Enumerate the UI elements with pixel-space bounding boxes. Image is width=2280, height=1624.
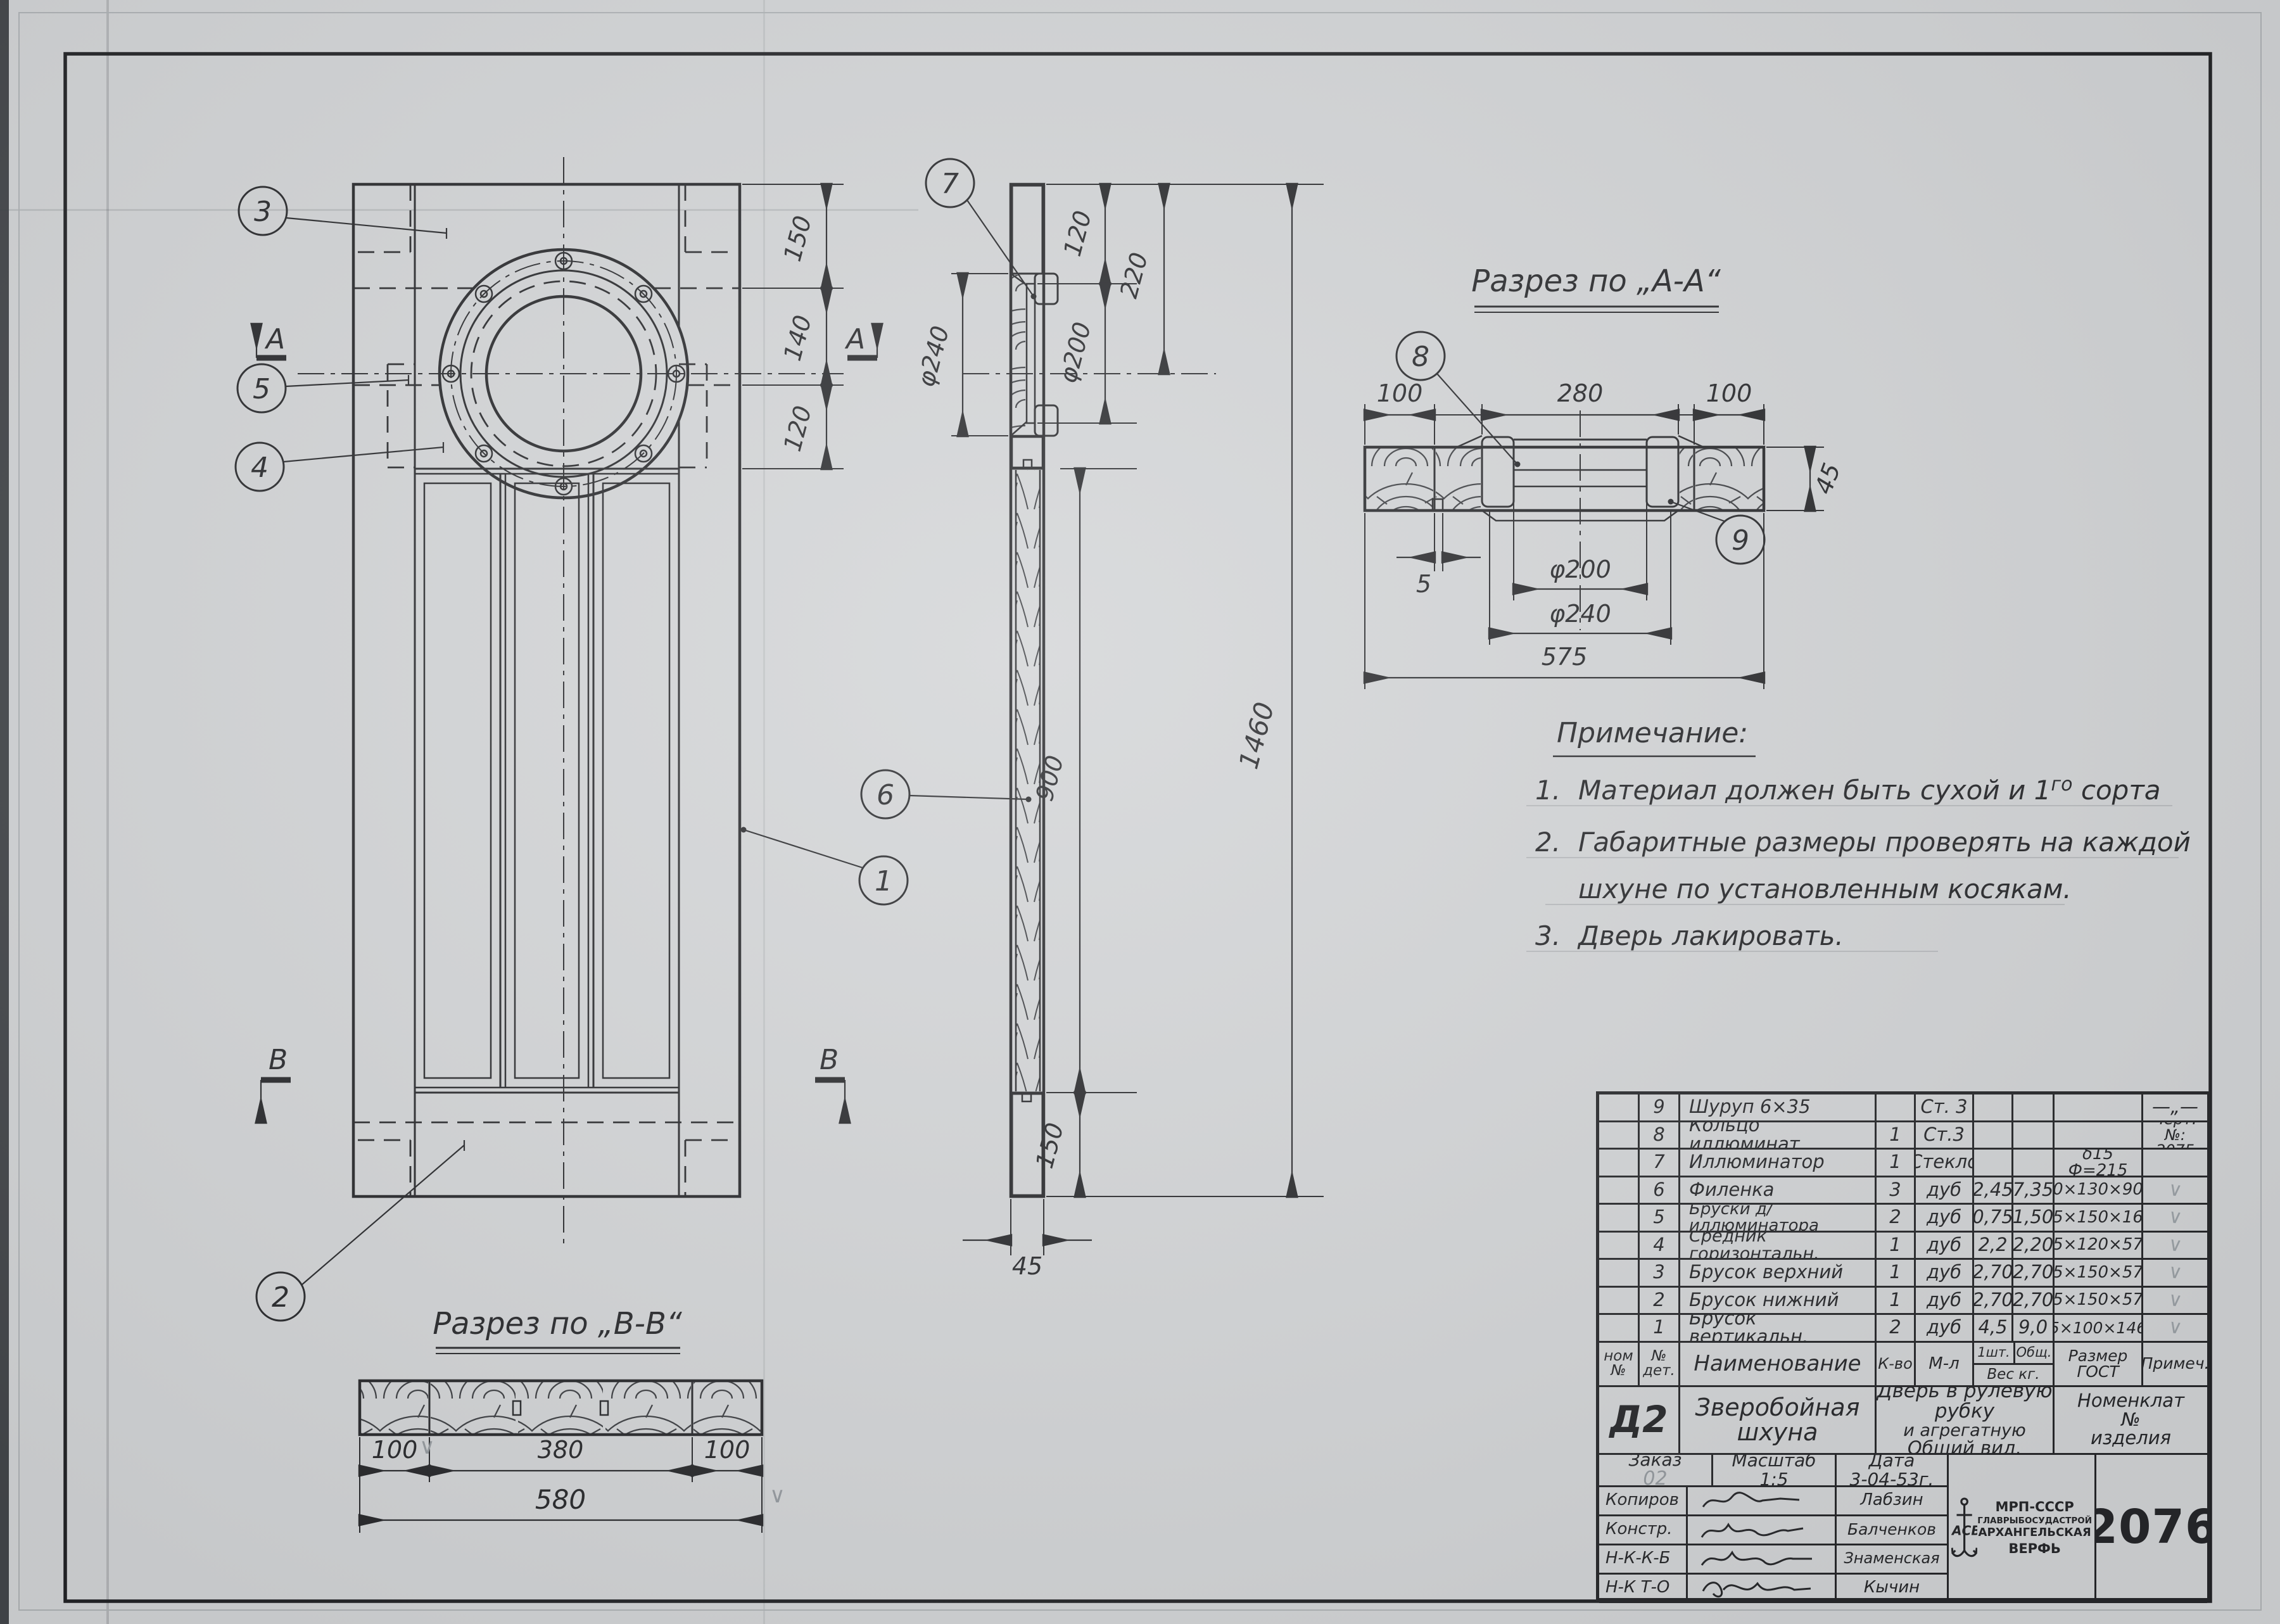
callout-6: 6	[861, 770, 1032, 818]
sig-name: Лабзин	[1837, 1487, 1949, 1516]
table-row: 7 Иллюминатор 1 Стекло δ15 Ф=215	[1599, 1150, 2207, 1177]
sig-name: Балченков	[1837, 1516, 1949, 1545]
dim-580: 580	[535, 1484, 586, 1515]
part-name: Филенка	[1680, 1177, 1877, 1203]
part-name: Средник горизонтальн.	[1680, 1233, 1877, 1259]
table-row: 5 Бруски д/иллюминатора 2 дуб 0,75 1,50 …	[1599, 1205, 2207, 1233]
section-aa-title: Разрез по „А-А“	[1471, 263, 1721, 299]
marker-b-label: В	[820, 1044, 839, 1076]
svg-text:4: 4	[251, 452, 269, 484]
svg-text:3: 3	[254, 196, 272, 228]
part-weight-each	[1974, 1094, 2013, 1120]
dim-phi200: φ200	[1054, 319, 1097, 386]
part-note: —„—	[2143, 1094, 2207, 1120]
section-marker-a-right: А	[844, 323, 877, 358]
logo-letters: АСВ	[1951, 1523, 1977, 1538]
part-name: Брусок нижний	[1680, 1288, 1877, 1314]
svg-text:1: 1	[875, 865, 892, 898]
part-size: 45×150×160	[2055, 1205, 2143, 1231]
sig-name: Знаменская	[1837, 1545, 1949, 1575]
organization-name: МРП-СССР ГЛАВРЫБОСУДАСТРОЙ АРХАНГЕЛЬСКАЯ…	[1977, 1499, 2092, 1557]
callout-5: 5	[237, 364, 408, 412]
approval-block: Заказ 02 Масштаб1:5 Дата3-04-53г.	[1599, 1455, 2207, 1604]
note-2-number: 2.	[1535, 827, 1561, 858]
header-qty: К-во	[1877, 1343, 1916, 1385]
svg-text:2: 2	[272, 1281, 289, 1314]
svg-text:5: 5	[253, 373, 270, 405]
dim-100-right: 100	[1706, 379, 1752, 407]
dim-100-left: 100	[1377, 379, 1423, 407]
part-material: Ст.3	[1916, 1122, 1974, 1148]
part-size: 45×150×575	[2055, 1260, 2143, 1286]
dim-phi240: φ240	[1549, 600, 1611, 628]
part-size: 45×150×575	[2055, 1288, 2143, 1314]
part-weight-total: 9,0	[2013, 1315, 2055, 1341]
dim-phi240: φ240	[912, 323, 955, 390]
aa-dimensions: 100 280 100 5 φ200 φ240 575	[1365, 379, 1846, 689]
part-qty: 2	[1877, 1315, 1916, 1341]
part-weight-each	[1974, 1122, 2013, 1148]
part-num: 9	[1640, 1094, 1680, 1120]
dim-380: 380	[538, 1436, 584, 1464]
dim-100-left: 100	[372, 1436, 418, 1464]
dim-45: 45	[1012, 1252, 1042, 1280]
nomenclature: Номенклат№изделия	[2055, 1387, 2207, 1453]
callouts: 3 5 4 2 1 6 7 8 9	[236, 159, 1764, 1321]
dim-120: 120	[1058, 208, 1097, 259]
part-qty: 1	[1877, 1288, 1916, 1314]
callout-4: 4	[236, 442, 443, 491]
part-num: 2	[1640, 1288, 1680, 1314]
drawing-title-row: Д2 Зверобойнаяшхуна Дверь в рулевую рубк…	[1599, 1387, 2207, 1455]
part-qty: 1	[1877, 1150, 1916, 1176]
part-material: дуб	[1916, 1315, 1974, 1341]
part-weight-each: 0,75	[1974, 1205, 2013, 1231]
part-size: δ15 Ф=215	[2055, 1150, 2143, 1176]
marker-a-label: А	[264, 323, 285, 355]
section-marker-b-left: В	[261, 1044, 291, 1122]
date-cell: Дата3-04-53г.	[1837, 1455, 1949, 1487]
part-weight-each: 2,45	[1974, 1177, 2013, 1203]
part-num: 6	[1640, 1177, 1680, 1203]
dim-150: 150	[778, 213, 817, 264]
notes-title: Примечание:	[1557, 717, 1748, 749]
part-qty	[1877, 1094, 1916, 1120]
note-2-line-1: Габаритные размеры проверять на каждой	[1578, 827, 2191, 858]
dim-100-right: 100	[704, 1436, 750, 1464]
section-aa: Разрез по „А-А“	[1365, 263, 1846, 689]
part-material: дуб	[1916, 1233, 1974, 1259]
table-row: 8 Кольцо иллюминат. 1 Ст.3 Черт.№:2075	[1599, 1122, 2207, 1150]
part-num: 1	[1640, 1315, 1680, 1341]
dim-575: 575	[1542, 643, 1588, 671]
organization-stamp: АСВ МРП-СССР ГЛАВРЫБОСУДАСТРОЙ АРХАНГЕЛЬ…	[1949, 1455, 2096, 1604]
svg-text:9: 9	[1732, 524, 1749, 557]
dim-150: 150	[1030, 1120, 1069, 1171]
note-3: Дверь лакировать.	[1577, 920, 1844, 951]
section-bb: Разрез по „В-В“ 100 380	[360, 1306, 785, 1533]
title-block: 9 Шуруп 6×35 Ст. 3 —„— 8 Кольцо иллюмина…	[1596, 1091, 2210, 1601]
part-qty: 3	[1877, 1177, 1916, 1203]
part-name: Бруски д/иллюминатора	[1680, 1205, 1877, 1231]
sheet-number: 2076	[2096, 1455, 2207, 1604]
bb-dimensions: 100 380 100 580 ∨ ∨	[360, 1434, 785, 1533]
part-qty: 1	[1877, 1260, 1916, 1286]
part-weight-each: 2,70	[1974, 1260, 2013, 1286]
pencil-check: ∨	[419, 1434, 435, 1459]
part-weight-total	[2013, 1094, 2055, 1120]
assembly-code: Д2	[1599, 1387, 1680, 1453]
anchor-icon: АСВ	[1951, 1464, 1977, 1591]
part-name: Иллюминатор	[1680, 1150, 1877, 1176]
drawing-title: Дверь в рулевую рубку и агрегатную Общий…	[1877, 1387, 2055, 1453]
sig-name: Кычин	[1837, 1575, 1949, 1604]
dim-phi200: φ200	[1549, 555, 1611, 583]
part-size	[2055, 1122, 2143, 1148]
header-material: М-л	[1916, 1343, 1974, 1385]
part-material: дуб	[1916, 1177, 1974, 1203]
table-row: 4 Средник горизонтальн. 1 дуб 2,2 2,20 4…	[1599, 1233, 2207, 1260]
svg-text:6: 6	[877, 779, 894, 811]
header-pos: ном№	[1599, 1343, 1640, 1385]
header-name: Наименование	[1680, 1343, 1877, 1385]
part-weight-total	[2013, 1122, 2055, 1148]
part-size: 45×100×1460	[2055, 1315, 2143, 1341]
part-name: Шуруп 6×35	[1680, 1094, 1877, 1120]
part-name: Брусок вертикальн.	[1680, 1315, 1877, 1341]
order-value: 02	[1643, 1469, 1667, 1487]
part-note: Черт.№:2075	[2143, 1122, 2207, 1148]
part-weight-each	[1974, 1150, 2013, 1176]
part-note	[2143, 1150, 2207, 1176]
callout-2: 2	[256, 1140, 464, 1321]
part-weight-each: 4,5	[1974, 1315, 2013, 1341]
dim-220: 220	[1115, 250, 1153, 301]
part-name: Брусок верхний	[1680, 1260, 1877, 1286]
part-num: 4	[1640, 1233, 1680, 1259]
table-row: 6 Филенка 3 дуб 2,45 7,35 30×130×900 ∨	[1599, 1177, 2207, 1205]
part-material: дуб	[1916, 1288, 1974, 1314]
header-detail: №дет.	[1640, 1343, 1680, 1385]
part-weight-each: 2,70	[1974, 1288, 2013, 1314]
part-material: дуб	[1916, 1205, 1974, 1231]
project-name: Зверобойнаяшхуна	[1680, 1387, 1877, 1453]
header-weight: 1шт.Общ. Вес кг.	[1974, 1343, 2055, 1385]
side-dimensions: 120 φ200 220 φ240 900 150 1460 45	[912, 184, 1324, 1280]
side-section-view: 120 φ200 220 φ240 900 150 1460 45	[912, 184, 1324, 1280]
table-header-row: ном№ №дет. Наименование К-во М-л 1шт.Общ…	[1599, 1343, 2207, 1387]
part-num: 3	[1640, 1260, 1680, 1286]
part-num: 5	[1640, 1205, 1680, 1231]
marker-a-label: А	[844, 323, 865, 355]
note-1: Материал должен быть сухой и 1го сорта	[1578, 773, 2161, 806]
part-weight-total: 2,70	[2013, 1260, 2055, 1286]
section-marker-a-left: А	[256, 323, 286, 358]
part-weight-total: 2,20	[2013, 1233, 2055, 1259]
part-qty: 2	[1877, 1205, 1916, 1231]
blueprint-sheet: .ln4{stroke:#26272a;stroke-width:4.5;fil…	[0, 0, 2280, 1624]
signature	[1688, 1516, 1837, 1545]
signature	[1688, 1545, 1837, 1575]
table-row: 1 Брусок вертикальн. 2 дуб 4,5 9,0 45×10…	[1599, 1315, 2207, 1343]
part-weight-each: 2,2	[1974, 1233, 2013, 1259]
note-2-line-2: шхуне по установленным косякам.	[1578, 873, 2072, 904]
svg-text:8: 8	[1412, 341, 1429, 373]
sig-label: Копиров	[1599, 1487, 1688, 1516]
note-3-number: 3.	[1535, 920, 1561, 951]
table-row: 3 Брусок верхний 1 дуб 2,70 2,70 45×150×…	[1599, 1260, 2207, 1288]
notes: Примечание: 1. Материал должен быть сухо…	[1526, 717, 2191, 951]
callout-1: 1	[741, 827, 908, 905]
part-size: 30×130×900	[2055, 1177, 2143, 1203]
section-bb-title: Разрез по „В-В“	[433, 1306, 683, 1342]
part-weight-total: 1,50	[2013, 1205, 2055, 1231]
signature	[1688, 1487, 1837, 1516]
scale-cell: Масштаб1:5	[1713, 1455, 1837, 1487]
dim-280: 280	[1557, 379, 1604, 407]
part-qty: 1	[1877, 1233, 1916, 1259]
marker-b-label: В	[269, 1044, 288, 1076]
signature	[1688, 1575, 1837, 1604]
part-num: 8	[1640, 1122, 1680, 1148]
dim-1460: 1460	[1232, 699, 1280, 772]
svg-text:7: 7	[941, 168, 959, 200]
sig-label: Констр.	[1599, 1516, 1688, 1545]
front-view-door: 150 140 120 А А В	[256, 157, 877, 1249]
part-weight-total: 7,35	[2013, 1177, 2055, 1203]
part-name: Кольцо иллюминат.	[1680, 1122, 1877, 1148]
dim-45: 45	[1809, 459, 1846, 497]
part-num: 7	[1640, 1150, 1680, 1176]
section-marker-b-right: В	[815, 1044, 845, 1122]
part-material: дуб	[1916, 1260, 1974, 1286]
part-size	[2055, 1094, 2143, 1120]
dim-5: 5	[1416, 570, 1431, 598]
front-dimensions: 150 140 120	[742, 184, 844, 469]
dim-140: 140	[778, 312, 817, 364]
dim-120: 120	[778, 403, 817, 454]
part-size: 45×120×575	[2055, 1233, 2143, 1259]
table-row: 2 Брусок нижний 1 дуб 2,70 2,70 45×150×5…	[1599, 1288, 2207, 1316]
sig-label: Н-К-К-Б	[1599, 1545, 1688, 1575]
part-weight-total: 2,70	[2013, 1288, 2055, 1314]
order-cell: Заказ 02	[1599, 1455, 1713, 1487]
table-row: 9 Шуруп 6×35 Ст. 3 —„—	[1599, 1094, 2207, 1122]
part-weight-total	[2013, 1150, 2055, 1176]
sig-label: Н-К Т-О	[1599, 1575, 1688, 1604]
header-note: Примеч.	[2143, 1343, 2207, 1385]
part-material: Стекло	[1916, 1150, 1974, 1176]
header-size: РазмерГОСТ	[2055, 1343, 2143, 1385]
part-material: Ст. 3	[1916, 1094, 1974, 1120]
pencil-check: ∨	[769, 1483, 785, 1508]
part-qty: 1	[1877, 1122, 1916, 1148]
note-1-number: 1.	[1535, 775, 1561, 806]
